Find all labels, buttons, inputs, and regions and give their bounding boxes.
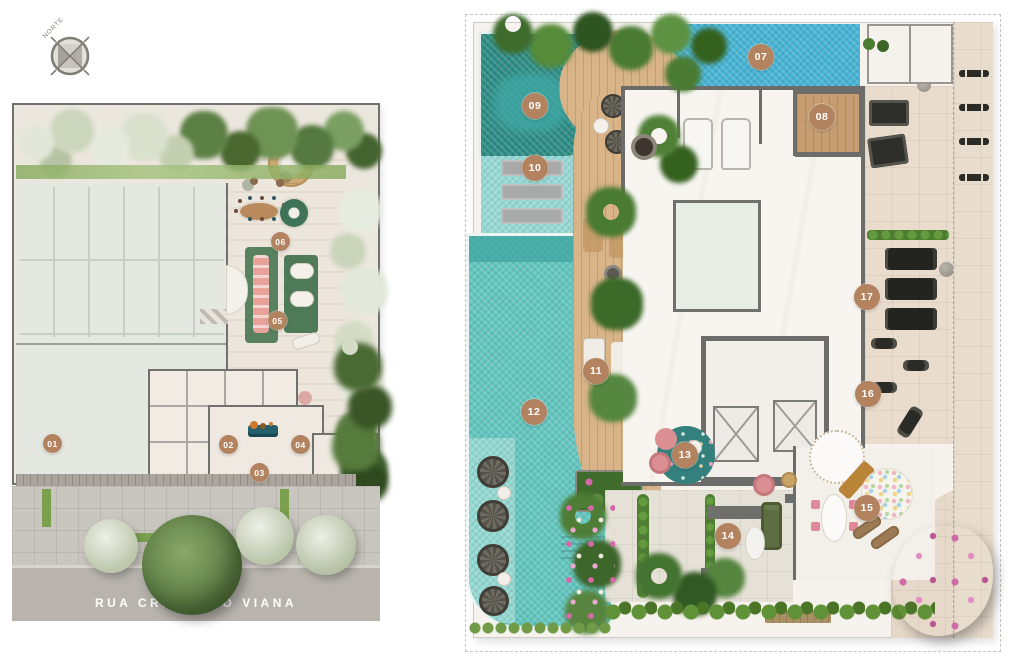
plan-marker-02[interactable]: 02 — [219, 435, 238, 454]
plan-marker-11[interactable]: 11 — [583, 358, 609, 384]
plan-marker-09[interactable]: 09 — [522, 93, 548, 119]
plan-marker-04[interactable]: 04 — [291, 435, 310, 454]
plan-marker-10[interactable]: 10 — [522, 155, 548, 181]
plan-canvas: NORTE — [0, 0, 1024, 669]
plan-marker-14[interactable]: 14 — [715, 523, 741, 549]
marker-layer: 0102030405060708091011121314151617 — [0, 0, 1024, 669]
plan-marker-03[interactable]: 03 — [250, 463, 269, 482]
plan-marker-15[interactable]: 15 — [854, 495, 880, 521]
plan-marker-16[interactable]: 16 — [855, 381, 881, 407]
plan-marker-17[interactable]: 17 — [854, 284, 880, 310]
plan-marker-06[interactable]: 06 — [271, 232, 290, 251]
plan-marker-07[interactable]: 07 — [748, 44, 774, 70]
plan-marker-13[interactable]: 13 — [672, 442, 698, 468]
plan-marker-08[interactable]: 08 — [809, 104, 835, 130]
plan-marker-01[interactable]: 01 — [43, 434, 62, 453]
plan-marker-05[interactable]: 05 — [268, 311, 287, 330]
plan-marker-12[interactable]: 12 — [521, 399, 547, 425]
